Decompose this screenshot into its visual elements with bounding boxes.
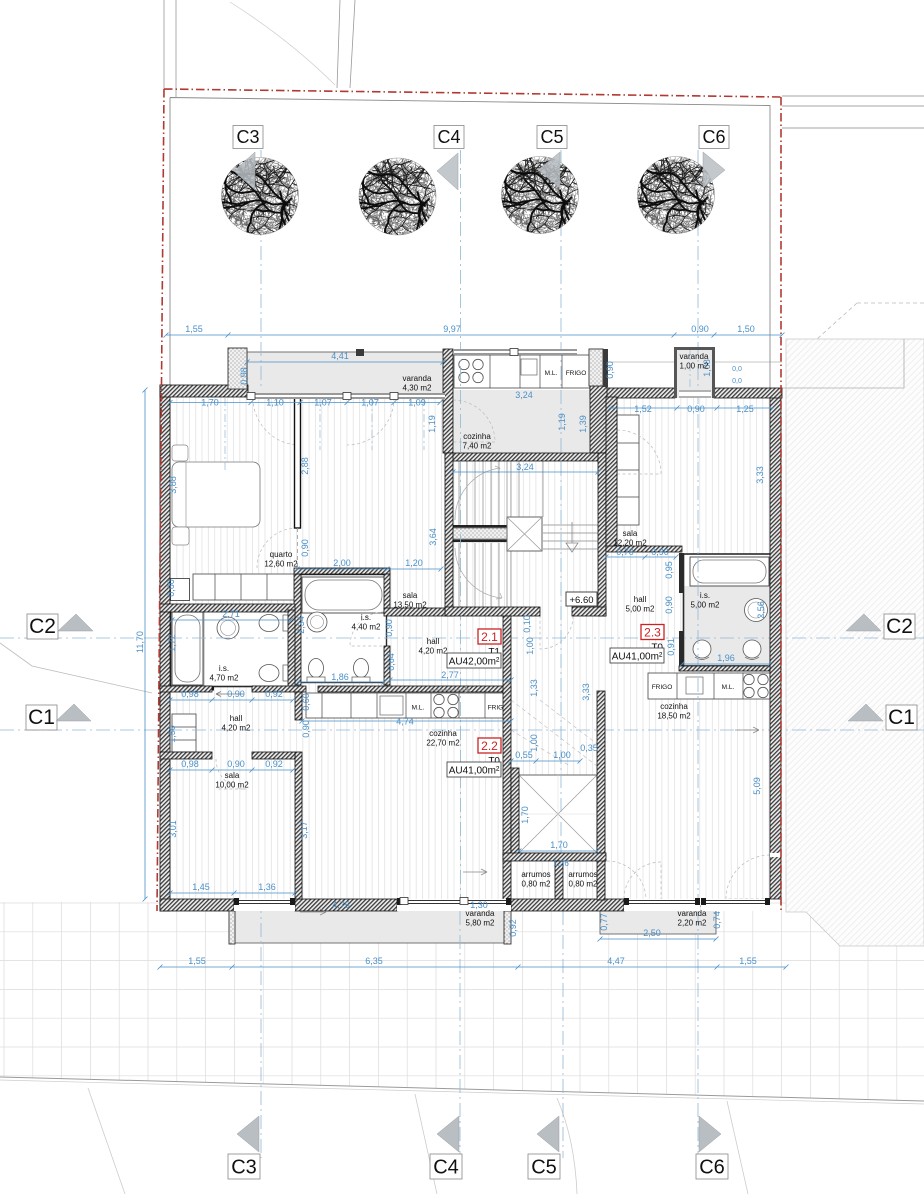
svg-text:varanda4,30 m2: varanda4,30 m2 <box>403 374 432 393</box>
svg-text:1,33: 1,33 <box>529 679 539 697</box>
svg-text:1,09: 1,09 <box>408 398 426 408</box>
svg-text:4,41: 4,41 <box>331 351 349 361</box>
svg-text:2.3: 2.3 <box>644 626 661 640</box>
svg-text:11,70: 11,70 <box>135 631 145 653</box>
svg-text:2,50: 2,50 <box>643 928 661 938</box>
svg-text:1,10: 1,10 <box>266 398 284 408</box>
svg-text:1,20: 1,20 <box>405 558 423 568</box>
svg-text:0,70: 0,70 <box>616 547 634 557</box>
svg-text:4,47: 4,47 <box>607 956 625 966</box>
svg-text:1,25: 1,25 <box>736 404 754 414</box>
svg-text:C1: C1 <box>28 706 55 729</box>
svg-text:1,70: 1,70 <box>550 840 568 850</box>
svg-text:FRIGO: FRIGO <box>566 370 587 377</box>
svg-text:C4: C4 <box>433 1157 459 1179</box>
svg-text:0,92: 0,92 <box>508 919 518 937</box>
svg-text:1,07: 1,07 <box>314 398 332 408</box>
svg-text:1,96: 1,96 <box>717 653 735 663</box>
svg-text:0,90: 0,90 <box>301 720 311 738</box>
svg-text:2,34: 2,34 <box>296 616 306 634</box>
svg-text:2,71: 2,71 <box>222 609 240 619</box>
svg-text:0,90: 0,90 <box>227 759 245 769</box>
svg-text:varanda5,80 m2: varanda5,80 m2 <box>466 909 495 928</box>
svg-text:0,90: 0,90 <box>687 404 705 414</box>
svg-text:0,95: 0,95 <box>664 561 674 579</box>
svg-text:0,90: 0,90 <box>664 596 674 614</box>
svg-text:1,50: 1,50 <box>737 324 755 334</box>
svg-text:arrumos0,80 m2: arrumos0,80 m2 <box>568 870 598 889</box>
svg-text:1,55: 1,55 <box>739 956 757 966</box>
svg-text:C5: C5 <box>540 127 563 147</box>
svg-text:C1: C1 <box>888 706 915 729</box>
svg-text:FRIGO: FRIGO <box>652 684 673 691</box>
svg-text:2.1: 2.1 <box>481 630 498 644</box>
svg-text:0,90: 0,90 <box>651 547 669 557</box>
svg-text:3,17: 3,17 <box>299 821 309 839</box>
svg-text:0,92: 0,92 <box>265 759 283 769</box>
svg-text:+6.60: +6.60 <box>569 595 593 606</box>
svg-text:C4: C4 <box>437 127 460 147</box>
svg-text:1,70: 1,70 <box>520 806 530 824</box>
svg-text:1,52: 1,52 <box>634 404 652 414</box>
svg-text:0,91: 0,91 <box>666 638 676 656</box>
svg-text:C2: C2 <box>29 615 56 638</box>
svg-text:1,26: 1,26 <box>553 859 569 868</box>
svg-text:2,56: 2,56 <box>756 601 766 619</box>
svg-text:AU41,00m²: AU41,00m² <box>449 766 500 777</box>
svg-text:3,24: 3,24 <box>516 462 534 472</box>
svg-text:0,35: 0,35 <box>580 743 598 753</box>
svg-text:M.L.: M.L. <box>412 705 425 712</box>
svg-text:0,98: 0,98 <box>181 759 199 769</box>
svg-text:0,10: 0,10 <box>522 615 532 633</box>
svg-text:0,60: 0,60 <box>166 579 176 597</box>
svg-text:3,88: 3,88 <box>168 476 178 494</box>
svg-text:0,98: 0,98 <box>181 689 199 699</box>
svg-text:cozinha7,40 m2: cozinha7,40 m2 <box>463 432 492 451</box>
svg-text:4,74: 4,74 <box>396 717 414 727</box>
svg-text:1,07: 1,07 <box>361 398 379 408</box>
svg-text:cozinha18,50 m2: cozinha18,50 m2 <box>657 702 691 721</box>
svg-text:0,64: 0,64 <box>386 653 396 671</box>
svg-text:varanda2,20 m2: varanda2,20 m2 <box>678 909 707 928</box>
svg-text:varanda1,00 m2: varanda1,00 m2 <box>680 352 709 371</box>
svg-text:3,33: 3,33 <box>581 683 591 701</box>
svg-text:2,88: 2,88 <box>300 457 310 475</box>
svg-text:1,36: 1,36 <box>258 882 276 892</box>
svg-text:0,92: 0,92 <box>265 689 283 699</box>
svg-text:arrumos0,80 m2: arrumos0,80 m2 <box>521 870 551 889</box>
svg-text:0,60: 0,60 <box>301 693 311 711</box>
svg-text:3,24: 3,24 <box>515 390 533 400</box>
svg-text:C2: C2 <box>886 615 913 638</box>
svg-text:2.2: 2.2 <box>481 739 498 753</box>
svg-text:1,19: 1,19 <box>557 413 567 431</box>
svg-text:AU41,00m²: AU41,00m² <box>612 652 663 663</box>
svg-text:4,75: 4,75 <box>332 900 350 910</box>
svg-text:1,00: 1,00 <box>529 734 539 752</box>
svg-text:1,00: 1,00 <box>525 637 535 655</box>
svg-text:1,72: 1,72 <box>167 634 177 652</box>
svg-text:3,01: 3,01 <box>168 820 178 838</box>
svg-text:9,97: 9,97 <box>443 324 461 334</box>
svg-text:3,64: 3,64 <box>428 528 438 546</box>
svg-text:AU42,00m²: AU42,00m² <box>449 657 500 668</box>
svg-text:0,77: 0,77 <box>599 913 609 931</box>
svg-text:1,19: 1,19 <box>427 415 437 433</box>
svg-text:0,98: 0,98 <box>239 367 249 385</box>
svg-text:5,09: 5,09 <box>752 777 762 795</box>
svg-text:0,90: 0,90 <box>384 619 394 637</box>
svg-text:6,35: 6,35 <box>365 956 383 966</box>
svg-text:0,0: 0,0 <box>732 378 742 385</box>
svg-text:0,90: 0,90 <box>227 689 245 699</box>
svg-text:0,90: 0,90 <box>691 324 709 334</box>
svg-text:C6: C6 <box>699 1157 725 1179</box>
svg-text:3,33: 3,33 <box>755 466 765 484</box>
svg-text:C5: C5 <box>531 1157 557 1179</box>
svg-text:1,86: 1,86 <box>331 672 349 682</box>
svg-text:1,55: 1,55 <box>185 324 203 334</box>
svg-text:2,77: 2,77 <box>441 670 459 680</box>
svg-text:C6: C6 <box>702 127 725 147</box>
svg-text:1,70: 1,70 <box>201 398 219 408</box>
svg-text:1,00: 1,00 <box>553 750 571 760</box>
svg-text:0,74: 0,74 <box>712 911 722 929</box>
svg-text:cozinha22,70 m2: cozinha22,70 m2 <box>426 729 460 748</box>
svg-text:C3: C3 <box>231 1157 257 1179</box>
svg-text:1,50: 1,50 <box>167 725 177 743</box>
svg-text:0,90: 0,90 <box>605 361 615 379</box>
svg-text:1,39: 1,39 <box>578 415 588 433</box>
svg-text:1,55: 1,55 <box>188 956 206 966</box>
svg-text:1,45: 1,45 <box>192 882 210 892</box>
svg-text:C3: C3 <box>236 127 259 147</box>
svg-text:0,0: 0,0 <box>732 366 742 373</box>
svg-text:0,90: 0,90 <box>300 539 310 557</box>
svg-text:2,00: 2,00 <box>333 558 351 568</box>
svg-text:M.L.: M.L. <box>545 370 558 377</box>
svg-text:M.L.: M.L. <box>722 684 735 691</box>
